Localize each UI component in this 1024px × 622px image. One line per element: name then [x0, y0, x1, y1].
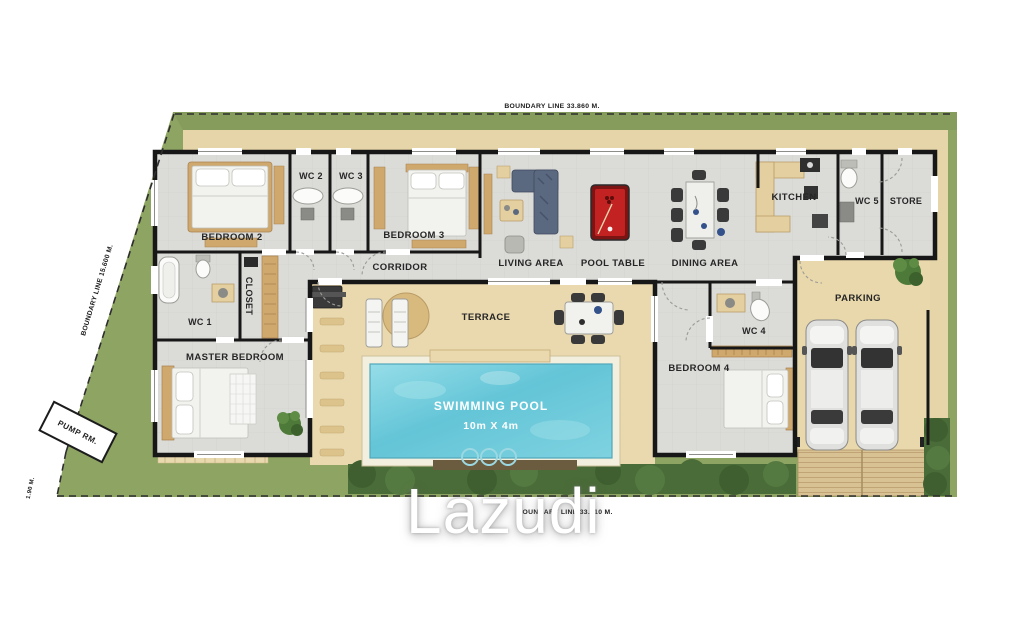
side-table-1 — [497, 166, 510, 178]
bbq-grill — [308, 286, 346, 308]
label-master: MASTER BEDROOM — [186, 352, 284, 363]
floorplan: PUMP RM. BEDROOM 2 WC 2 WC 3 BEDROOM 3 C… — [0, 0, 1024, 622]
side-table-2 — [560, 236, 573, 248]
bedroom3-wardrobe-right — [469, 167, 479, 229]
label-parking: PARKING — [835, 293, 881, 304]
car-left — [802, 320, 852, 450]
boundary-label-corner: 1.90 M. — [26, 477, 36, 500]
label-wc4: WC 4 — [742, 326, 766, 336]
label-bedroom4: BEDROOM 4 — [668, 363, 729, 374]
boundary-label-top: BOUNDARY LINE 33.860 M. — [504, 103, 599, 110]
label-pool-size: 10m X 4m — [463, 420, 518, 432]
label-terrace: TERRACE — [462, 312, 511, 323]
kitchen-appliance — [812, 214, 828, 228]
label-wc2: WC 2 — [299, 171, 323, 181]
label-kitchen: KITCHEN — [771, 192, 816, 203]
bedroom3-bench — [412, 240, 466, 248]
car-right — [852, 320, 902, 450]
label-wc3: WC 3 — [339, 171, 363, 181]
label-wc5: WC 5 — [855, 196, 879, 206]
label-living: LIVING AREA — [498, 258, 563, 269]
label-dining: DINING AREA — [672, 258, 739, 269]
label-corridor: CORRIDOR — [373, 262, 428, 273]
master-bed — [162, 366, 256, 440]
label-pool-name: SWIMMING POOL — [434, 399, 548, 413]
armchair — [505, 236, 524, 253]
label-bedroom3: BEDROOM 3 — [383, 230, 444, 241]
pool-table — [591, 185, 629, 240]
label-bedroom2: BEDROOM 2 — [201, 232, 262, 243]
label-closet: CLOSET — [244, 277, 254, 316]
bedroom3-wardrobe-left — [374, 167, 385, 229]
pool-edge-box — [430, 350, 550, 362]
brand-watermark: Lazudi — [406, 474, 601, 548]
label-wc1: WC 1 — [188, 317, 212, 327]
label-pool-table: POOL TABLE — [581, 258, 645, 269]
bedroom2-wardrobe — [274, 166, 284, 224]
coffee-table — [500, 200, 523, 221]
entry-cabinet — [484, 174, 492, 234]
label-store: STORE — [890, 196, 922, 206]
dining-table — [686, 182, 714, 238]
